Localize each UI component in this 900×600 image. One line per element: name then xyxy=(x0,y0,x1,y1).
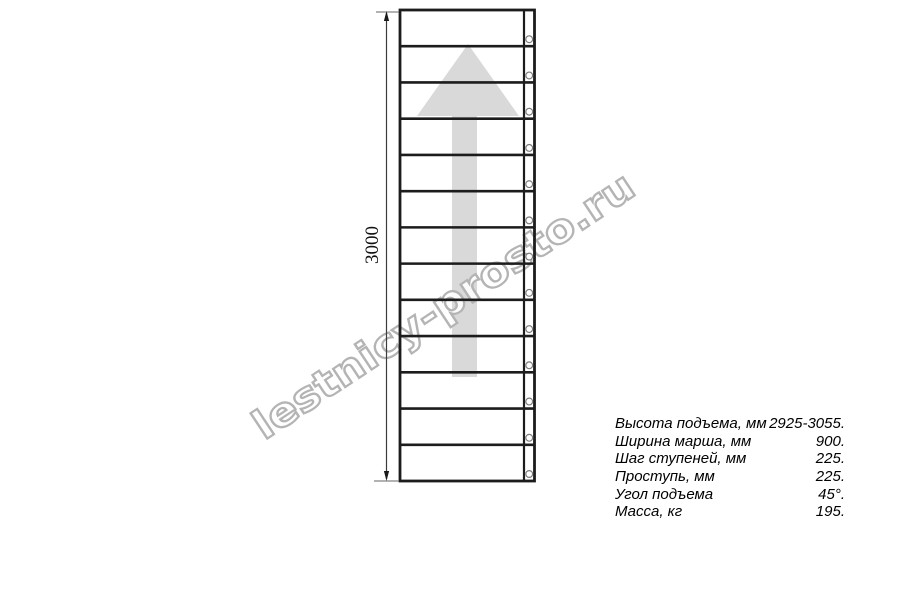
technical-drawing-page: lestnicy-prosto.ru 3000 Высота подъема, … xyxy=(0,0,900,600)
spec-label: Угол подъема xyxy=(615,486,713,504)
spec-row: Проступь, мм225. xyxy=(615,468,845,486)
mount-hole-icon xyxy=(526,145,533,152)
spec-row: Угол подъема45°. xyxy=(615,486,845,504)
mount-hole-icon xyxy=(526,108,533,115)
spec-value: 45°. xyxy=(818,486,845,504)
spec-value: 900. xyxy=(816,433,845,451)
spec-label: Ширина марша, мм xyxy=(615,433,751,451)
dimension-label: 3000 xyxy=(362,226,383,264)
spec-row: Высота подъема, мм2925-3055. xyxy=(615,415,845,433)
spec-row: Шаг ступеней, мм225. xyxy=(615,450,845,468)
specs-table: Высота подъема, мм2925-3055.Ширина марша… xyxy=(615,415,845,521)
dimension-3000: 3000 xyxy=(362,11,399,481)
mount-hole-icon xyxy=(526,362,533,369)
mount-hole-icon xyxy=(526,36,533,43)
mount-hole-icon xyxy=(526,434,533,441)
spec-label: Шаг ступеней, мм xyxy=(615,450,746,468)
mount-hole-icon xyxy=(526,326,533,333)
spec-label: Масса, кг xyxy=(615,503,682,521)
spec-value: 2925-3055. xyxy=(769,415,845,433)
spec-value: 225. xyxy=(816,468,845,486)
mount-hole-icon xyxy=(526,72,533,79)
mount-hole-icon xyxy=(526,253,533,260)
mount-hole-icon xyxy=(526,398,533,405)
dimension-arrow-bottom-icon xyxy=(384,471,389,481)
spec-label: Проступь, мм xyxy=(615,468,715,486)
mount-hole-icon xyxy=(526,471,533,478)
spec-value: 225. xyxy=(816,450,845,468)
watermark-text: lestnicy-prosto.ru xyxy=(244,163,643,449)
mount-hole-icon xyxy=(526,289,533,296)
spec-label: Высота подъема, мм xyxy=(615,415,767,433)
mount-hole-icon xyxy=(526,181,533,188)
spec-row: Ширина марша, мм900. xyxy=(615,433,845,451)
spec-row: Масса, кг195. xyxy=(615,503,845,521)
mount-hole-icon xyxy=(526,217,533,224)
spec-value: 195. xyxy=(816,503,845,521)
